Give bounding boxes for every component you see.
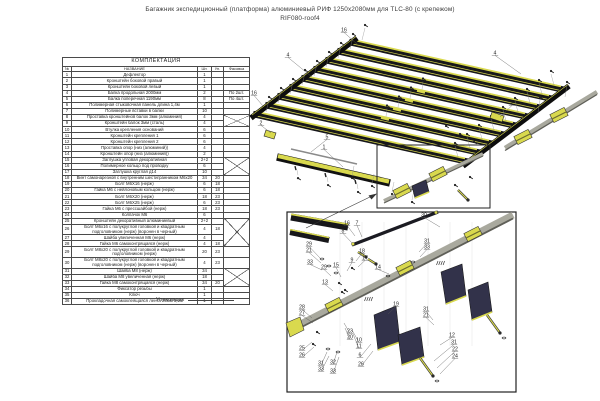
platform-view — [251, 24, 569, 204]
callout-25: 25 — [299, 346, 305, 352]
callout-16: 16 — [251, 91, 257, 97]
callout-13: 13 — [322, 280, 328, 286]
callout-1: 1 — [323, 145, 326, 151]
callout-7: 7 — [356, 221, 359, 227]
callout-16: 16 — [341, 28, 347, 34]
callout-29: 29 — [321, 265, 327, 271]
callout-33: 33 — [424, 245, 430, 251]
callout-33: 33 — [318, 367, 324, 373]
callout-26: 26 — [358, 362, 364, 368]
callout-17: 17 — [362, 256, 368, 262]
assembly-diagram: 1641642251301678292133291513918171431332… — [0, 0, 600, 401]
callout-11: 11 — [356, 344, 361, 350]
callout-15: 15 — [333, 263, 339, 269]
drawing-page: { "title": { "line1": "Багажник экспедиц… — [0, 0, 600, 401]
callout-2: 2 — [511, 101, 514, 107]
callout-33: 33 — [307, 260, 313, 266]
callout-33: 33 — [330, 369, 336, 375]
callout-5: 5 — [326, 135, 329, 141]
callout-18: 18 — [359, 249, 365, 255]
callout-8: 8 — [342, 229, 345, 235]
callout-21: 21 — [306, 248, 312, 254]
callout-32: 32 — [330, 360, 336, 366]
callout-12: 12 — [449, 333, 455, 339]
detail-arrow — [369, 194, 378, 200]
callout-19: 19 — [393, 302, 399, 308]
callout-27: 27 — [299, 311, 305, 317]
side-bracket-left — [264, 130, 276, 139]
callout-16: 16 — [344, 221, 350, 227]
callout-14: 14 — [375, 265, 381, 271]
callout-26: 26 — [299, 353, 305, 359]
callout-4: 4 — [287, 53, 290, 59]
callout-20: 20 — [347, 335, 353, 341]
callout-2: 2 — [260, 121, 263, 127]
callout-9: 9 — [351, 258, 354, 264]
callout-4: 4 — [494, 51, 497, 57]
callout-21: 21 — [423, 313, 429, 319]
callout-24: 24 — [452, 354, 458, 360]
callout-6: 6 — [359, 353, 362, 359]
callout-22: 22 — [452, 347, 458, 353]
callout-31: 31 — [451, 340, 457, 346]
callout-30: 30 — [421, 213, 427, 219]
